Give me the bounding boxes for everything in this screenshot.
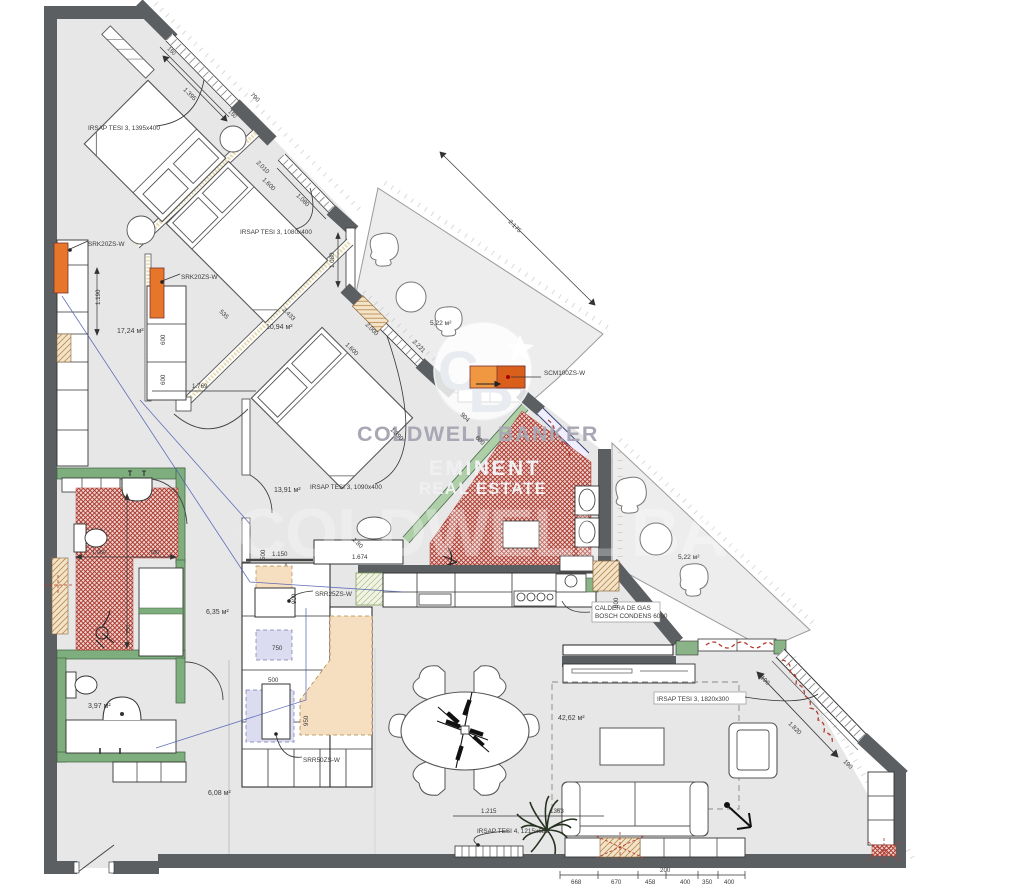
svg-text:CALDERA DE GAS: CALDERA DE GAS	[595, 605, 651, 612]
svg-text:1.060: 1.060	[92, 550, 106, 556]
svg-text:SRK20ZS-W: SRK20ZS-W	[88, 241, 126, 248]
svg-text:IRSAP TESI 3, 1820x300: IRSAP TESI 3, 1820x300	[657, 696, 729, 703]
svg-text:EMINENT: EMINENT	[429, 457, 541, 480]
svg-text:6,35 м²: 6,35 м²	[206, 609, 229, 616]
svg-text:780: 780	[150, 550, 159, 556]
svg-text:500: 500	[260, 549, 267, 560]
svg-text:600: 600	[613, 597, 620, 608]
svg-text:1.215: 1.215	[481, 808, 497, 815]
svg-text:1.080: 1.080	[329, 252, 336, 268]
svg-text:IRSAP TESI 3, 1080x400: IRSAP TESI 3, 1080x400	[240, 229, 312, 236]
svg-text:10,94 м²: 10,94 м²	[266, 324, 293, 331]
svg-text:COLDWELL BANKER: COLDWELL BANKER	[237, 495, 916, 571]
svg-text:350: 350	[702, 879, 713, 886]
svg-text:600: 600	[160, 374, 167, 385]
svg-text:668: 668	[571, 879, 582, 886]
svg-text:500: 500	[268, 677, 279, 684]
svg-text:IRSAP TESI 4, 1215x685: IRSAP TESI 4, 1215x685	[477, 828, 549, 835]
svg-text:1.190: 1.190	[95, 289, 102, 305]
svg-text:458: 458	[645, 879, 656, 886]
svg-text:13,91 м²: 13,91 м²	[274, 487, 301, 494]
svg-text:6,08 м²: 6,08 м²	[208, 790, 231, 797]
svg-text:750: 750	[126, 625, 132, 634]
svg-text:5,22 м²: 5,22 м²	[430, 320, 452, 327]
svg-text:400: 400	[680, 879, 691, 886]
svg-text:200: 200	[660, 867, 671, 874]
svg-text:SRR25ZS-W: SRR25ZS-W	[315, 591, 353, 598]
svg-text:670: 670	[611, 879, 622, 886]
svg-text:5,22 м²: 5,22 м²	[678, 554, 700, 561]
svg-text:3,97 м²: 3,97 м²	[88, 703, 111, 710]
svg-text:IRSAP TESI 3, 1395x400: IRSAP TESI 3, 1395x400	[88, 125, 160, 132]
svg-text:BOSCH CONDENS 6000: BOSCH CONDENS 6000	[595, 613, 668, 620]
svg-text:400: 400	[724, 879, 735, 886]
svg-text:42,62 м²: 42,62 м²	[558, 715, 585, 722]
svg-text:1363: 1363	[550, 808, 564, 815]
svg-text:750: 750	[272, 645, 283, 652]
svg-text:600: 600	[160, 334, 167, 345]
svg-text:IRSAP TESI 3, 1090x400: IRSAP TESI 3, 1090x400	[310, 484, 382, 491]
svg-text:B: B	[468, 354, 514, 426]
svg-text:1.674: 1.674	[352, 554, 368, 561]
svg-text:SRK20ZS-W: SRK20ZS-W	[181, 274, 219, 281]
svg-text:1.769: 1.769	[192, 383, 208, 390]
svg-text:950: 950	[303, 715, 310, 726]
svg-text:SRR50ZS-W: SRR50ZS-W	[303, 757, 341, 764]
svg-text:1.150: 1.150	[272, 551, 288, 558]
svg-text:17,24 м²: 17,24 м²	[117, 328, 144, 335]
svg-text:SCM100ZS-W: SCM100ZS-W	[544, 370, 586, 377]
